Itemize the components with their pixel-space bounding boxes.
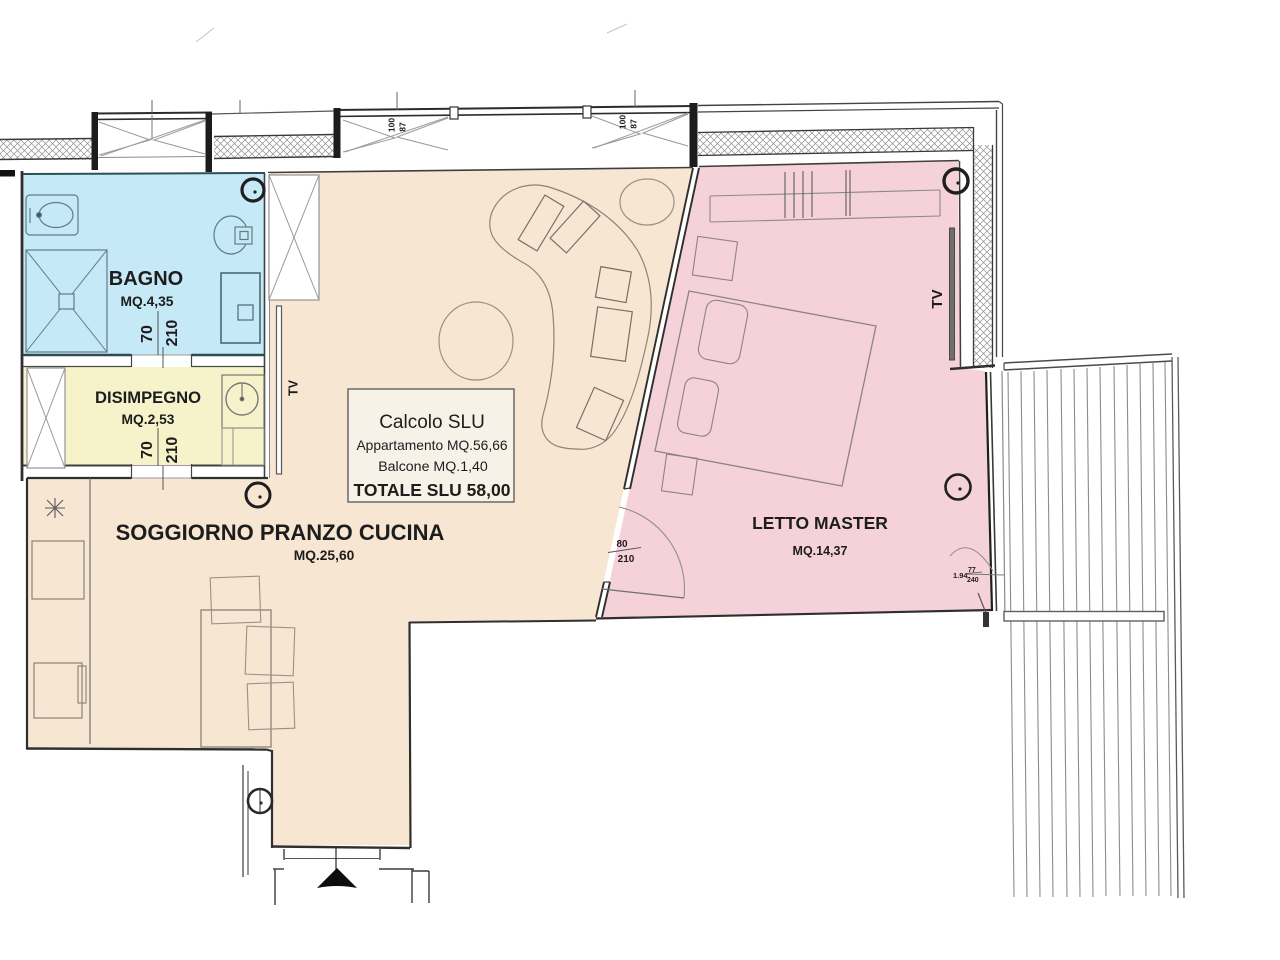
- svg-text:100: 100: [386, 118, 396, 132]
- svg-text:MQ.4,35: MQ.4,35: [121, 294, 174, 309]
- svg-text:240: 240: [967, 577, 979, 584]
- svg-text:210: 210: [164, 320, 181, 347]
- svg-text:TV: TV: [929, 289, 946, 308]
- svg-text:100: 100: [617, 115, 627, 129]
- svg-text:Appartamento MQ.56,66: Appartamento MQ.56,66: [356, 438, 507, 453]
- svg-text:Calcolo SLU: Calcolo SLU: [379, 412, 485, 433]
- svg-text:87: 87: [397, 122, 407, 132]
- svg-text:MQ.14,37: MQ.14,37: [793, 544, 848, 558]
- svg-text:80: 80: [616, 539, 628, 550]
- svg-text:LETTO MASTER: LETTO MASTER: [752, 513, 888, 533]
- svg-text:Balcone MQ.1,40: Balcone MQ.1,40: [378, 459, 488, 475]
- svg-text:210: 210: [618, 554, 635, 565]
- svg-text:MQ.25,60: MQ.25,60: [294, 548, 355, 563]
- svg-text:TV: TV: [286, 379, 300, 396]
- svg-text:70: 70: [139, 325, 156, 343]
- svg-text:MQ.2,53: MQ.2,53: [122, 412, 175, 427]
- svg-text:DISIMPEGNO: DISIMPEGNO: [95, 388, 201, 407]
- svg-text:210: 210: [164, 437, 181, 464]
- svg-text:BAGNO: BAGNO: [109, 268, 183, 290]
- svg-text:TOTALE SLU 58,00: TOTALE SLU 58,00: [354, 480, 511, 500]
- svg-text:70: 70: [139, 441, 156, 459]
- svg-text:87: 87: [628, 119, 638, 129]
- svg-text:SOGGIORNO PRANZO CUCINA: SOGGIORNO PRANZO CUCINA: [116, 520, 445, 545]
